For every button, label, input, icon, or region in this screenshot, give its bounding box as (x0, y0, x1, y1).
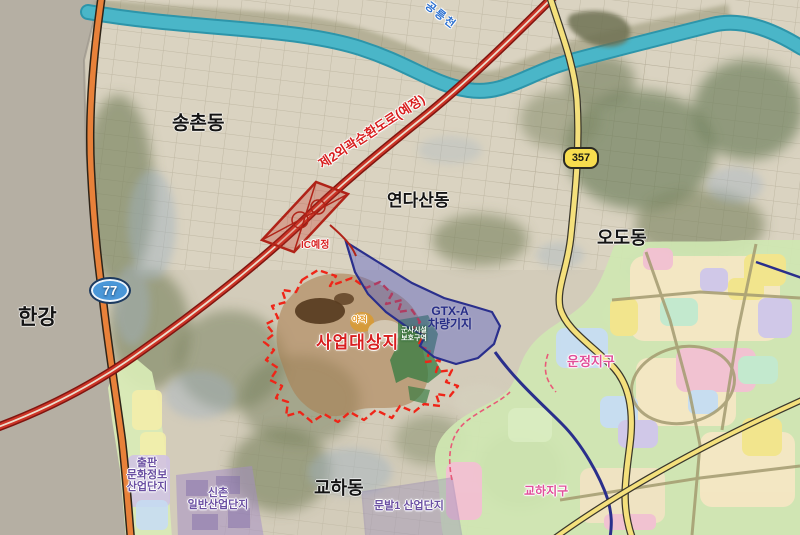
label-ic-planned: IC예정 (301, 240, 329, 251)
label-unjeong-district: 운정지구 (567, 355, 615, 369)
map-canvas (0, 0, 800, 535)
label-hangang: 한강 (18, 306, 57, 329)
label-green-zone: 군사시설 보호구역 (394, 327, 434, 342)
label-songchon-dong: 송촌동 (172, 114, 224, 135)
label-project-site: 사업대상지 (316, 334, 399, 353)
label-gyoha-dong: 교하동 (314, 479, 364, 499)
label-gyoha-district: 교하지구 (524, 485, 568, 498)
route-357-shield: 357 (563, 147, 599, 169)
label-odo-dong: 오도동 (597, 229, 647, 249)
label-chulpan-complex: 출판 문화정보 산업단지 (118, 457, 176, 493)
label-munbal-complex: 문발1 산업단지 (374, 500, 444, 512)
satellite-planning-map[interactable]: 한강 송촌동 연다산동 오도동 교하동 제2외곽순환도로(예정) IC예정 사업… (0, 0, 800, 535)
route-77-shield: 77 (89, 277, 131, 304)
label-yard: 야적 (352, 316, 367, 325)
label-sinchon-complex: 신촌 일반산업단지 (172, 487, 264, 511)
label-yeondasan-dong: 연다산동 (387, 192, 450, 211)
